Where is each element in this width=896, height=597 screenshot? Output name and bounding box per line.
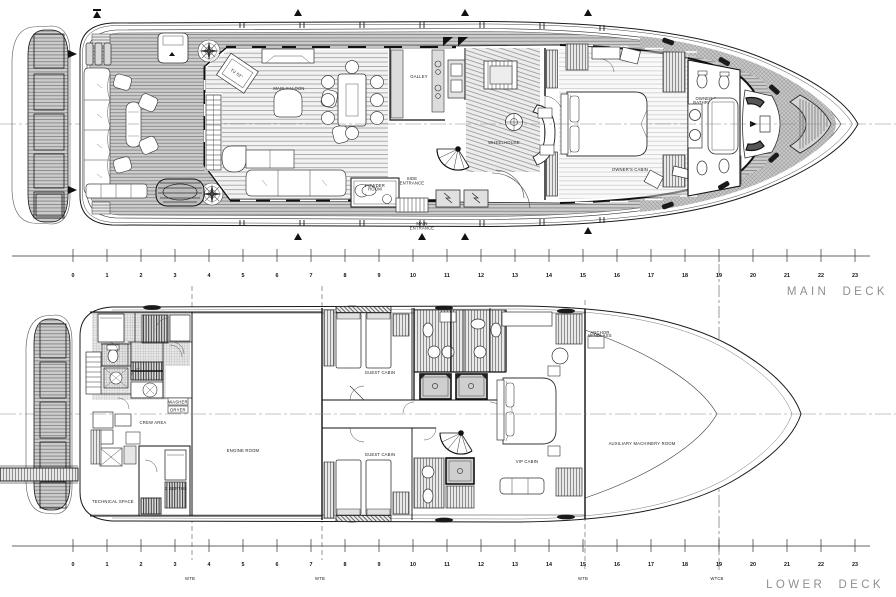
svg-text:6: 6	[276, 273, 279, 279]
svg-text:20: 20	[750, 273, 756, 279]
svg-text:GALLEY: GALLEY	[410, 74, 428, 79]
svg-text:2: 2	[140, 273, 143, 279]
svg-text:5: 5	[242, 562, 245, 568]
svg-text:VIP CABIN: VIP CABIN	[516, 459, 538, 464]
svg-text:MAIN DECK: MAIN DECK	[787, 286, 888, 298]
svg-text:23: 23	[852, 273, 858, 279]
svg-text:LOWER DECK: LOWER DECK	[766, 579, 884, 591]
svg-text:13: 13	[512, 562, 518, 568]
svg-text:ENTRANCE: ENTRANCE	[410, 226, 435, 231]
svg-text:3: 3	[174, 273, 177, 279]
svg-text:TECHNICAL SPACE: TECHNICAL SPACE	[92, 499, 134, 504]
svg-text:14: 14	[546, 273, 552, 279]
svg-text:22: 22	[818, 562, 824, 568]
svg-text:WTB: WTB	[315, 576, 325, 581]
svg-text:17: 17	[648, 273, 654, 279]
svg-text:ROOM: ROOM	[368, 187, 382, 192]
svg-text:1: 1	[106, 273, 109, 279]
svg-text:18: 18	[682, 273, 688, 279]
svg-text:OWNER'S CABIN: OWNER'S CABIN	[612, 167, 648, 172]
svg-text:2: 2	[140, 562, 143, 568]
svg-text:ENTRANCE: ENTRANCE	[400, 181, 425, 186]
svg-text:DRYER: DRYER	[170, 408, 186, 413]
svg-text:7: 7	[310, 273, 313, 279]
svg-text:18: 18	[682, 562, 688, 568]
svg-text:19: 19	[716, 562, 722, 568]
svg-text:10: 10	[410, 562, 416, 568]
svg-text:9: 9	[378, 273, 381, 279]
svg-text:0: 0	[72, 562, 75, 568]
svg-text:3: 3	[174, 562, 177, 568]
svg-text:4: 4	[208, 562, 211, 568]
svg-text:2 BERTHS: 2 BERTHS	[165, 486, 187, 491]
svg-text:CREW AREA: CREW AREA	[140, 420, 167, 425]
svg-text:WINDLASS: WINDLASS	[588, 333, 611, 338]
svg-text:GUEST CABIN: GUEST CABIN	[365, 452, 396, 457]
svg-text:23: 23	[852, 562, 858, 568]
svg-text:0: 0	[72, 273, 75, 279]
svg-text:WHEELHOUSE: WHEELHOUSE	[488, 140, 520, 145]
svg-text:8: 8	[344, 562, 347, 568]
svg-text:8: 8	[344, 273, 347, 279]
svg-text:21: 21	[784, 562, 790, 568]
svg-text:16: 16	[614, 273, 620, 279]
svg-text:1: 1	[106, 562, 109, 568]
svg-text:12: 12	[478, 273, 484, 279]
svg-text:WTB: WTB	[578, 576, 588, 581]
svg-text:22: 22	[818, 273, 824, 279]
svg-text:15: 15	[580, 273, 586, 279]
svg-text:WTB: WTB	[185, 576, 195, 581]
svg-text:WTCB: WTCB	[710, 576, 723, 581]
svg-text:6: 6	[276, 562, 279, 568]
svg-text:11: 11	[444, 562, 450, 568]
svg-text:9: 9	[378, 562, 381, 568]
svg-text:13: 13	[512, 273, 518, 279]
svg-text:ENGINE ROOM: ENGINE ROOM	[227, 448, 260, 453]
svg-text:12: 12	[478, 562, 484, 568]
svg-text:GUEST CABIN: GUEST CABIN	[365, 370, 396, 375]
svg-text:16: 16	[614, 562, 620, 568]
svg-text:7: 7	[310, 562, 313, 568]
svg-text:10: 10	[410, 273, 416, 279]
svg-text:4: 4	[208, 273, 211, 279]
svg-text:15: 15	[580, 562, 586, 568]
svg-text:WASHER: WASHER	[168, 400, 187, 405]
svg-text:14: 14	[546, 562, 552, 568]
svg-text:17: 17	[648, 562, 654, 568]
svg-text:AUXILIARY MACHINERY ROOM: AUXILIARY MACHINERY ROOM	[609, 441, 676, 446]
svg-text:5: 5	[242, 273, 245, 279]
svg-text:21: 21	[784, 273, 790, 279]
svg-text:20: 20	[750, 562, 756, 568]
svg-text:11: 11	[444, 273, 450, 279]
